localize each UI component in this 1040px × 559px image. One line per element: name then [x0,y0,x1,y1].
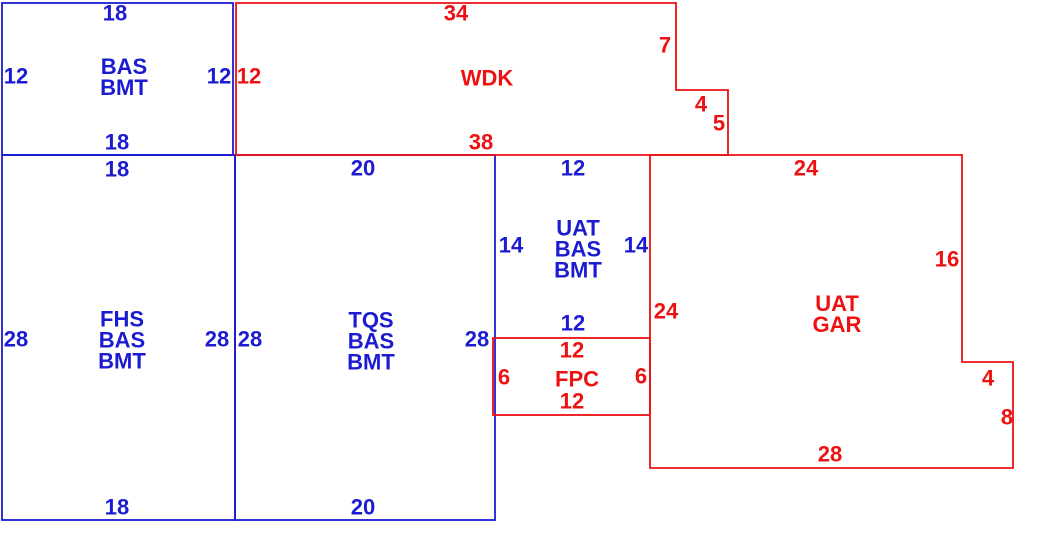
uat-bas-bmt-dim-left: 14 [499,235,523,256]
uat-gar-dim-right-upper: 16 [935,249,959,270]
wdk-dim-top: 34 [444,3,468,24]
uat-bas-bmt-area-line: BAS [554,239,602,260]
uat-gar-area-label: UAT GAR [813,293,862,335]
bas-bmt-dim-right: 12 [207,66,231,87]
fpc-area-label: FPC [555,369,599,390]
fpc-dim-left: 6 [498,367,510,388]
uat-gar-dim-notch-side: 8 [1001,407,1013,428]
fhs-bas-bmt-dim-left: 28 [4,329,28,350]
bas-bmt-area-line: BMT [100,77,148,98]
sketch-outlines [0,0,1040,559]
fpc-dim-right: 6 [635,366,647,387]
tqs-bas-bmt-area-line: TQS [347,310,395,331]
uat-bas-bmt-dim-bottom: 12 [561,313,585,334]
wdk-dim-step-across: 4 [695,94,707,115]
bas-bmt-dim-bottom: 18 [105,132,129,153]
uat-gar-dim-bottom: 28 [818,444,842,465]
fpc-dim-bottom: 12 [560,391,584,412]
uat-gar-area-line: UAT [813,293,862,314]
uat-bas-bmt-area-line: BMT [554,260,602,281]
fhs-bas-bmt-dim-top: 18 [105,159,129,180]
wdk-dim-bottom: 38 [469,132,493,153]
fhs-bas-bmt-dim-bottom: 18 [105,497,129,518]
fhs-bas-bmt-area-label: FHS BAS BMT [98,309,146,372]
tqs-bas-bmt-dim-left: 28 [238,329,262,350]
uat-gar-area-line: GAR [813,314,862,335]
uat-bas-bmt-dim-right: 14 [624,235,648,256]
uat-gar-dim-left: 24 [654,301,678,322]
uat-gar-dim-notch-top: 4 [982,368,994,389]
tqs-bas-bmt-area-label: TQS BAS BMT [347,310,395,373]
fhs-bas-bmt-area-line: BMT [98,351,146,372]
tqs-bas-bmt-dim-top: 20 [351,158,375,179]
tqs-bas-bmt-dim-right: 28 [465,329,489,350]
wdk-dim-step-lower: 5 [713,113,725,134]
wdk-dim-left: 12 [237,66,261,87]
uat-bas-bmt-dim-top: 12 [561,158,585,179]
fhs-bas-bmt-area-line: BAS [98,330,146,351]
wdk-dim-step-upper: 7 [659,35,671,56]
fhs-bas-bmt-area-line: FHS [98,309,146,330]
uat-bas-bmt-area-label: UAT BAS BMT [554,218,602,281]
tqs-bas-bmt-area-line: BMT [347,352,395,373]
floorplan-sketch: 18 12 BAS BMT 12 18 34 12 WDK 7 4 5 38 1… [0,0,1040,559]
fpc-dim-top: 12 [560,340,584,361]
bas-bmt-dim-left: 12 [4,66,28,87]
uat-gar-dim-top: 24 [794,158,818,179]
tqs-bas-bmt-dim-bottom: 20 [351,497,375,518]
bas-bmt-area-line: BAS [100,56,148,77]
fhs-bas-bmt-dim-right: 28 [205,329,229,350]
wdk-area-label: WDK [461,68,514,89]
tqs-bas-bmt-area-line: BAS [347,331,395,352]
uat-bas-bmt-area-line: UAT [554,218,602,239]
bas-bmt-dim-top: 18 [103,3,127,24]
bas-bmt-area-label: BAS BMT [100,56,148,98]
